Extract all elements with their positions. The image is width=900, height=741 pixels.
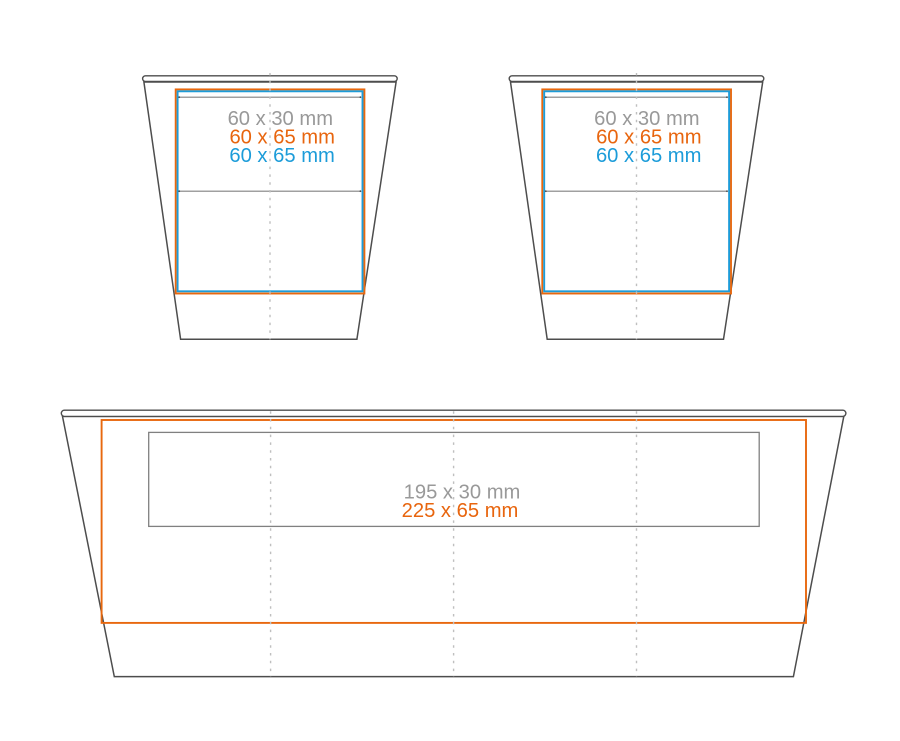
svg-text:60 x 65 mm: 60 x 65 mm: [229, 145, 334, 167]
svg-text:60 x 65 mm: 60 x 65 mm: [596, 145, 701, 167]
svg-text:225 x 65 mm: 225 x 65 mm: [402, 500, 519, 522]
